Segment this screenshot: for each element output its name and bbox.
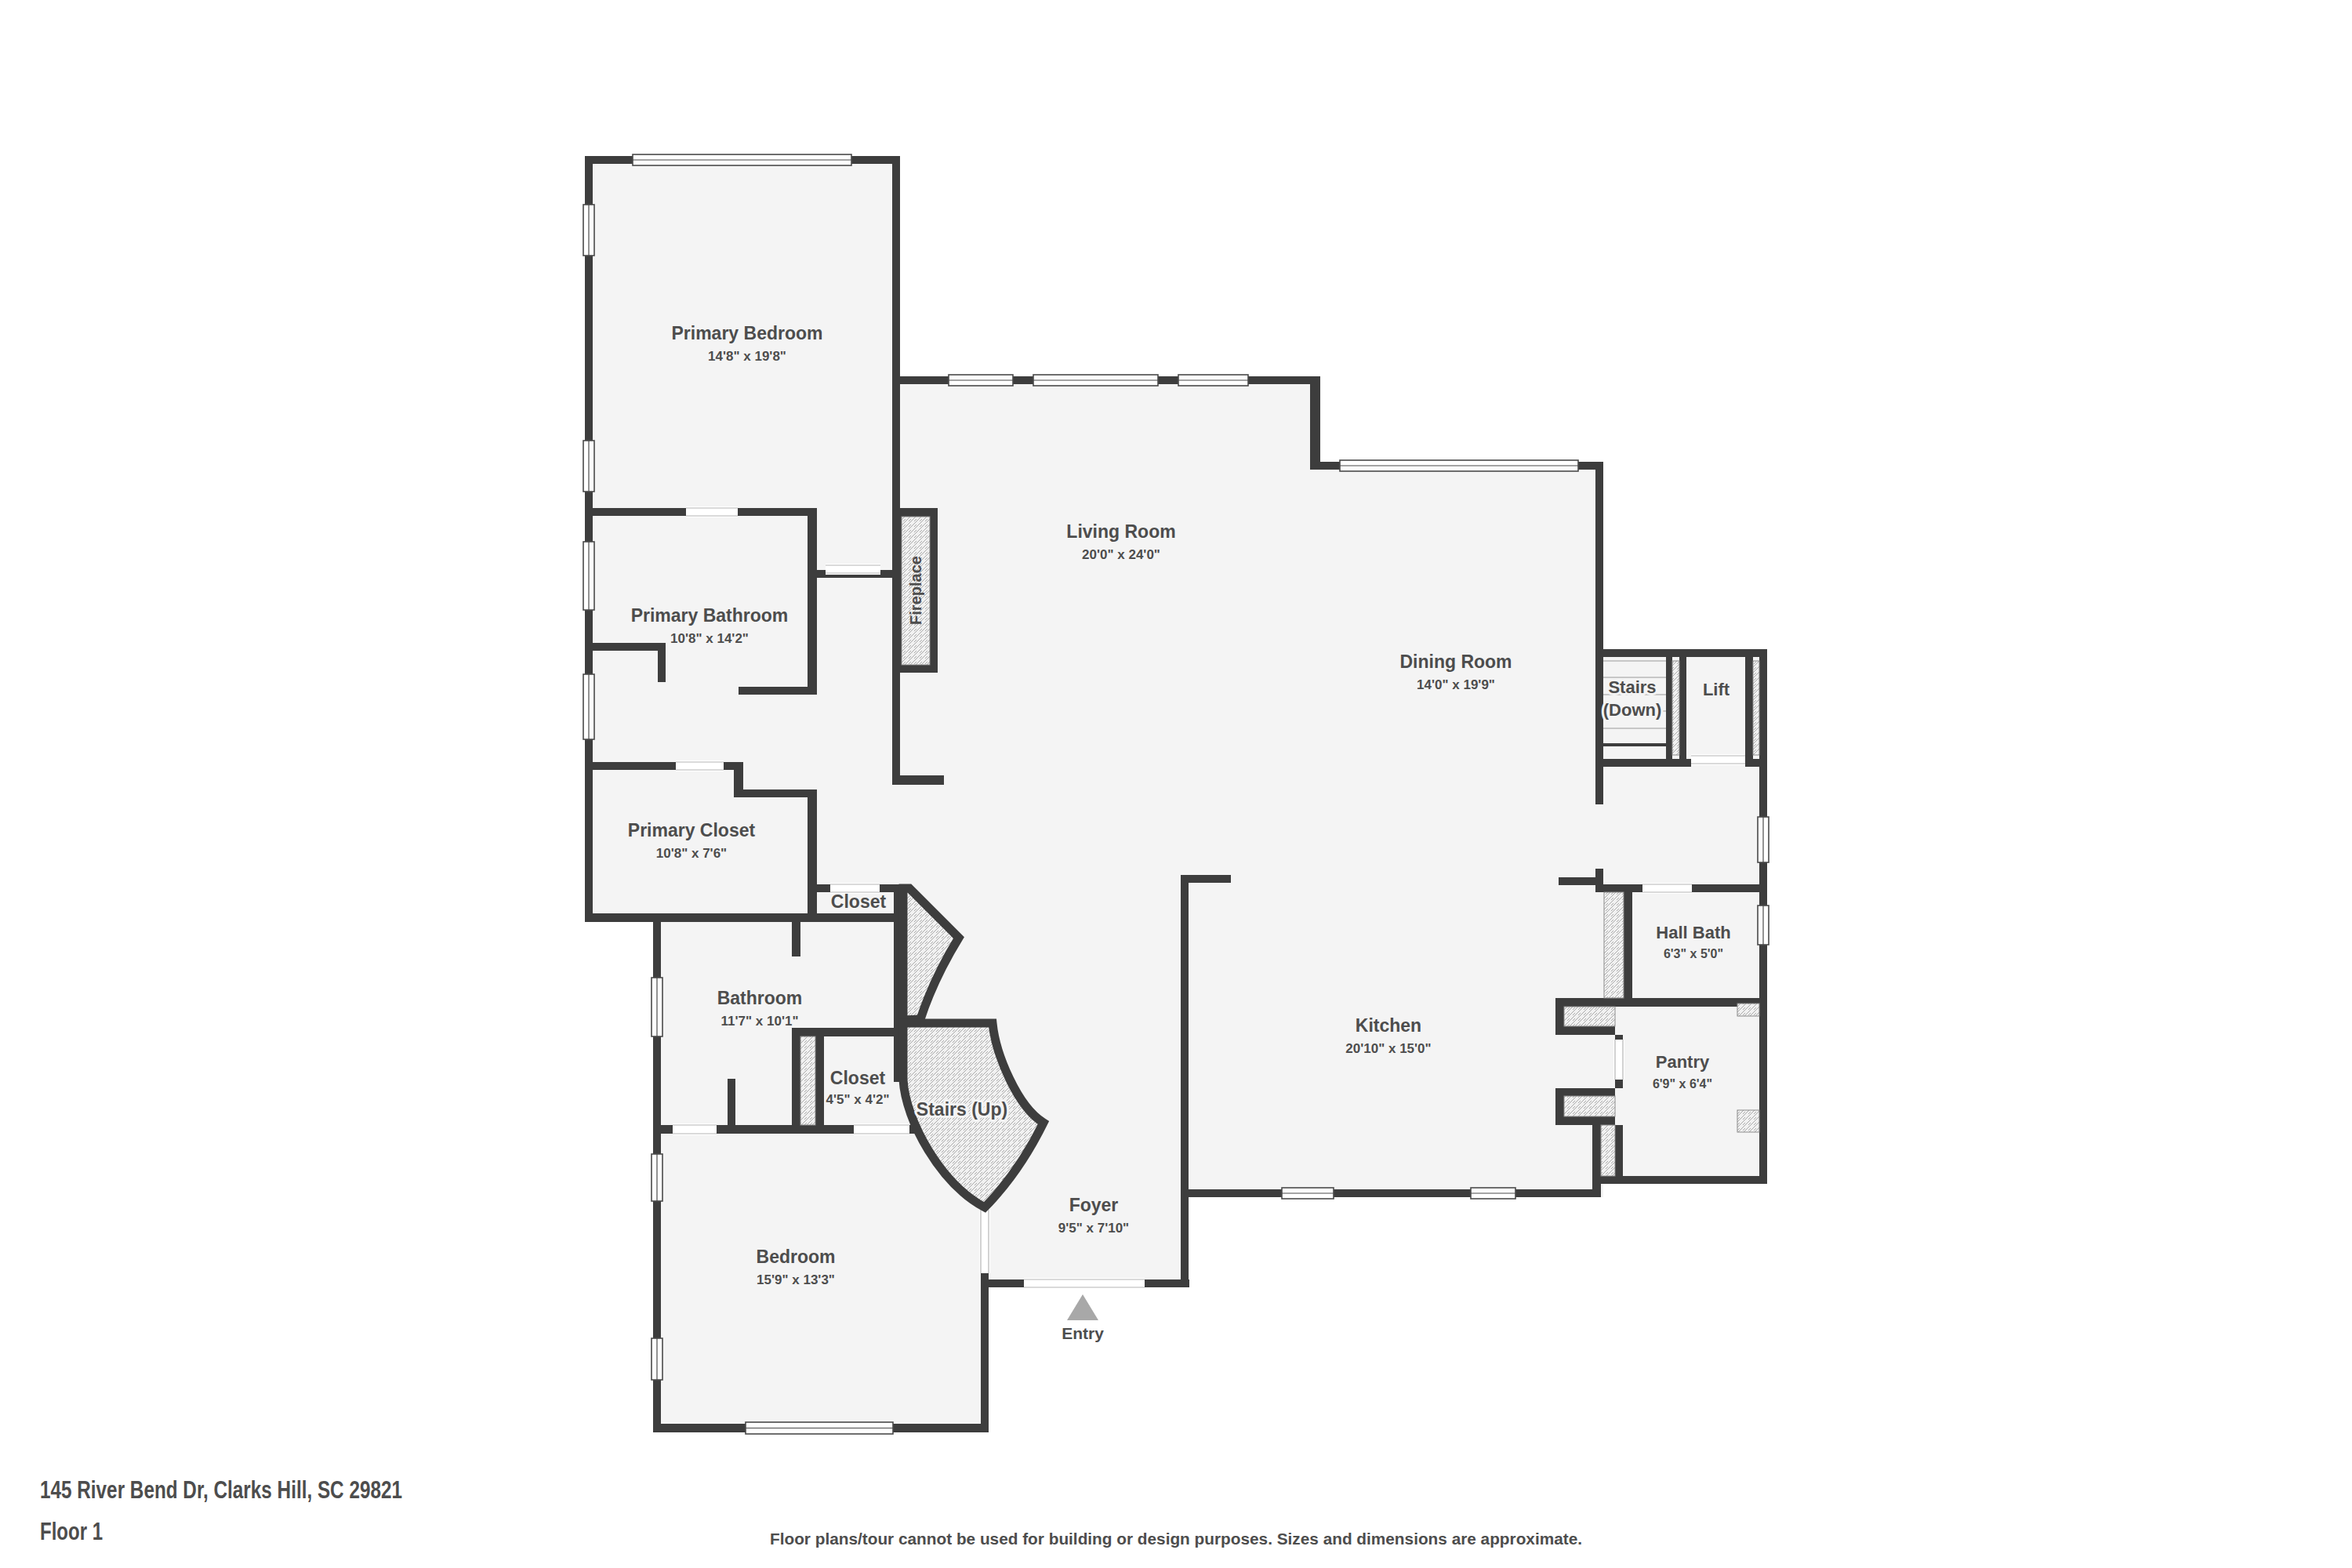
svg-text:Dining Room: Dining Room (1399, 652, 1512, 672)
svg-text:Bedroom: Bedroom (757, 1247, 836, 1267)
svg-text:15'9" x 13'3": 15'9" x 13'3" (757, 1272, 835, 1287)
svg-text:4'5" x 4'2": 4'5" x 4'2" (826, 1092, 890, 1107)
svg-text:Foyer: Foyer (1069, 1195, 1119, 1215)
svg-text:14'8" x 19'8": 14'8" x 19'8" (708, 349, 786, 364)
svg-text:Floor plans/tour cannot be use: Floor plans/tour cannot be used for buil… (770, 1530, 1582, 1548)
svg-text:10'8" x 14'2": 10'8" x 14'2" (670, 631, 749, 646)
svg-text:Stairs: Stairs (1608, 677, 1656, 697)
svg-text:Fireplace: Fireplace (907, 556, 924, 625)
svg-text:9'5" x 7'10": 9'5" x 7'10" (1058, 1221, 1129, 1236)
svg-text:Floor 1: Floor 1 (40, 1517, 103, 1545)
svg-text:Closet: Closet (830, 1068, 886, 1088)
svg-text:Hall Bath: Hall Bath (1656, 923, 1730, 942)
svg-text:Primary Closet: Primary Closet (628, 820, 756, 840)
svg-text:Bathroom: Bathroom (717, 988, 803, 1008)
svg-text:(Down): (Down) (1603, 700, 1662, 720)
svg-text:Kitchen: Kitchen (1356, 1015, 1421, 1036)
svg-text:Pantry: Pantry (1656, 1052, 1710, 1072)
svg-text:10'8" x 7'6": 10'8" x 7'6" (656, 846, 727, 861)
svg-text:6'3" x 5'0": 6'3" x 5'0" (1664, 947, 1723, 960)
svg-text:Living Room: Living Room (1066, 521, 1175, 542)
svg-text:Lift: Lift (1703, 680, 1730, 699)
svg-text:Primary Bedroom: Primary Bedroom (671, 323, 822, 343)
svg-text:Closet: Closet (831, 891, 887, 912)
svg-text:20'10" x 15'0": 20'10" x 15'0" (1345, 1041, 1431, 1056)
svg-text:6'9" x 6'4": 6'9" x 6'4" (1653, 1077, 1712, 1091)
svg-text:14'0" x 19'9": 14'0" x 19'9" (1417, 677, 1495, 692)
svg-text:11'7" x 10'1": 11'7" x 10'1" (721, 1014, 799, 1029)
svg-text:145 River Bend Dr, Clarks Hill: 145 River Bend Dr, Clarks Hill, SC 29821 (40, 1475, 402, 1504)
svg-text:Primary Bathroom: Primary Bathroom (631, 605, 789, 626)
svg-text:20'0" x 24'0": 20'0" x 24'0" (1082, 547, 1160, 562)
svg-text:Entry: Entry (1062, 1324, 1104, 1342)
svg-text:Stairs (Up): Stairs (Up) (916, 1099, 1007, 1120)
